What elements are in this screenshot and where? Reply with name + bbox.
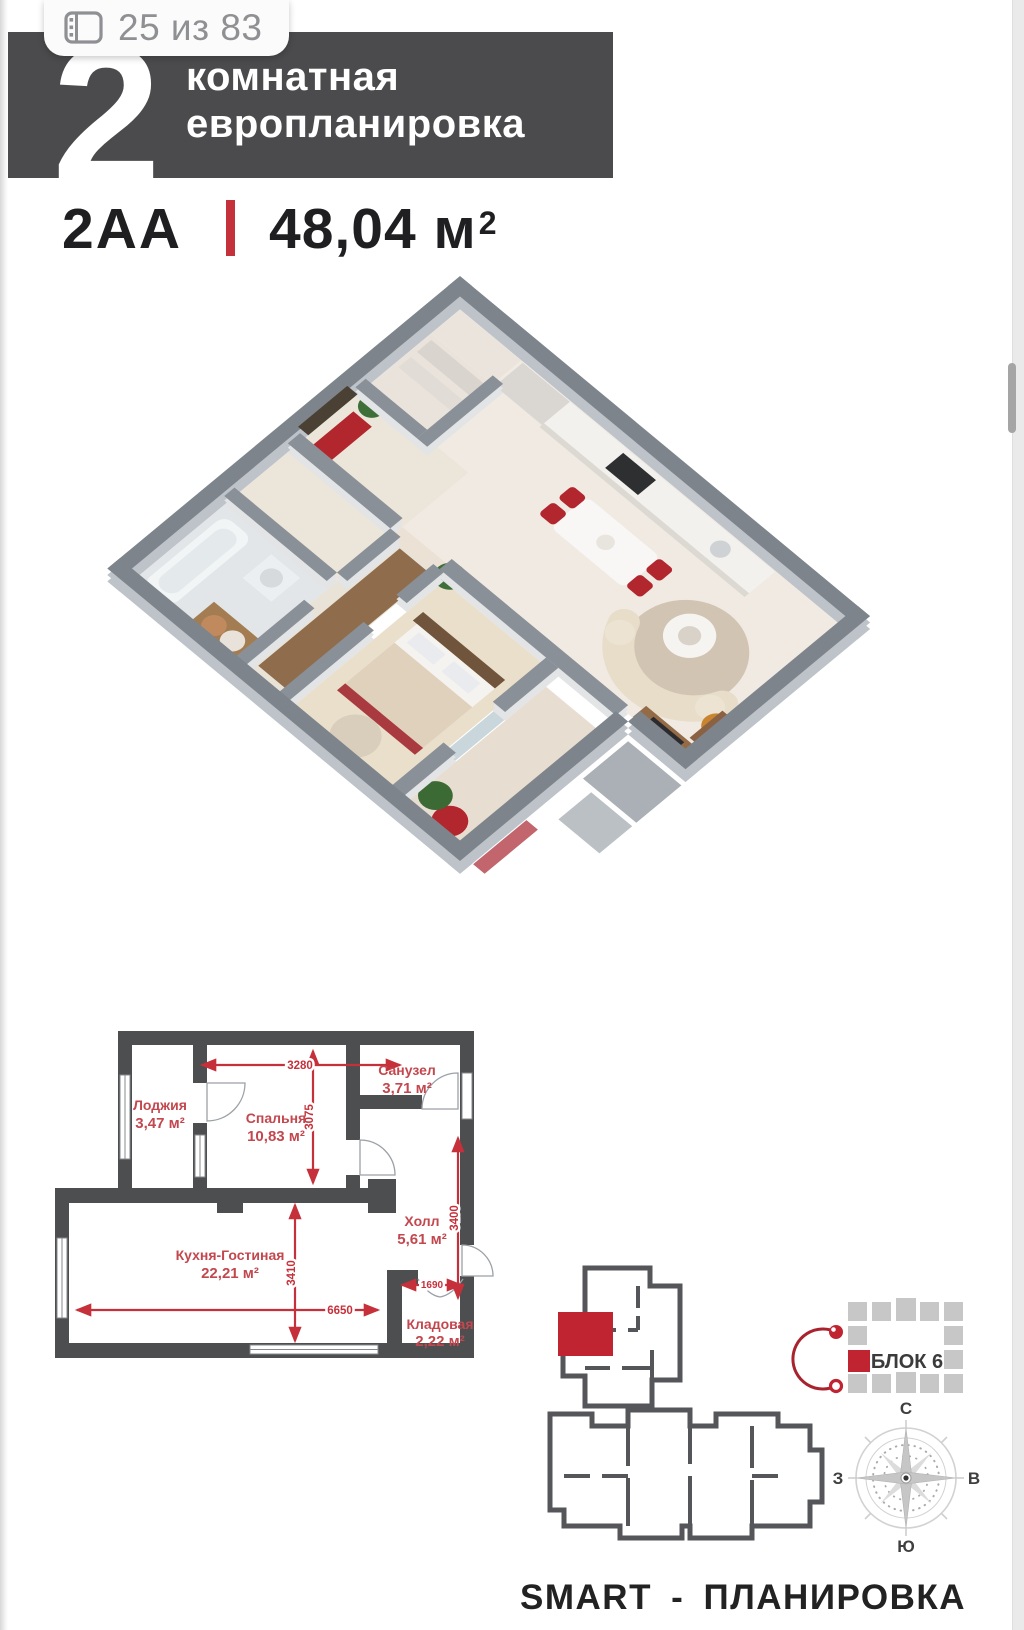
room-bathroom-area: 3,71 м²: [382, 1080, 431, 1097]
red-divider-bar: [226, 200, 235, 256]
arc-end-dot: [829, 1325, 843, 1339]
view-direction-arc: [793, 1329, 836, 1389]
slogan: SMART - ПЛАНИРОВКА: [520, 1578, 966, 1618]
banner-text: комнатная европланировка: [186, 54, 525, 148]
page-left-edge: [0, 0, 8, 1630]
site-buildings: [848, 1298, 963, 1393]
brochure-page: 25 из 83 2 комнатная европланировка 2АА …: [0, 0, 1024, 1630]
room-bathroom-name: Санузел: [378, 1062, 436, 1078]
block-label: БЛОК 6: [871, 1351, 943, 1373]
page-indicator-label: 25 из 83: [118, 7, 263, 49]
isometric-3d-floorplan: [55, 265, 915, 965]
pages-icon: [64, 11, 104, 45]
room-hall-area: 5,61 м²: [397, 1231, 446, 1248]
compass-rose: С Ю З В: [830, 1402, 982, 1554]
banner-line1: комнатная: [186, 54, 525, 101]
site-highlighted-block: [848, 1350, 870, 1372]
unit-area: 48,04 м2: [269, 196, 497, 262]
compass-south: Ю: [897, 1537, 915, 1554]
site-plan: БЛОК 6: [790, 1292, 995, 1410]
room-bedroom-area: 10,83 м²: [247, 1128, 305, 1145]
dim-hall-height: 3400: [449, 1205, 461, 1231]
compass-west: З: [833, 1469, 844, 1488]
arc-end-ring: [831, 1381, 842, 1392]
dim-storage-width: 1690: [421, 1280, 444, 1291]
scrollbar-track: [1012, 0, 1024, 1630]
dim-kitchen-height: 3410: [286, 1260, 298, 1286]
compass-east: В: [968, 1469, 980, 1488]
scrollbar-thumb[interactable]: [1008, 363, 1016, 433]
room-loggia-area: 3,47 м²: [135, 1115, 184, 1132]
room-storage-name: Кладовая: [406, 1316, 473, 1332]
room-storage-area: 2,22 м²: [415, 1333, 464, 1350]
highlighted-unit: [558, 1312, 613, 1356]
compass-north: С: [900, 1402, 912, 1418]
room-loggia-name: Лоджия: [133, 1097, 187, 1113]
page-indicator-pill[interactable]: 25 из 83: [44, 0, 289, 56]
room-kitchen-area: 22,21 м²: [201, 1265, 259, 1282]
room-kitchen-name: Кухня-Гостиная: [176, 1247, 285, 1263]
floorplan-2d: 3280 3075 3410 6650 1690 3400 Лоджия 3,4…: [50, 983, 530, 1375]
dim-bedroom-width: 3280: [287, 1060, 313, 1072]
banner-line2: европланировка: [186, 101, 525, 148]
dim-kitchen-width: 6650: [327, 1305, 353, 1317]
room-bedroom-name: Спальня: [246, 1110, 306, 1126]
area-superscript: 2: [479, 205, 498, 241]
room-hall-name: Холл: [404, 1213, 439, 1229]
